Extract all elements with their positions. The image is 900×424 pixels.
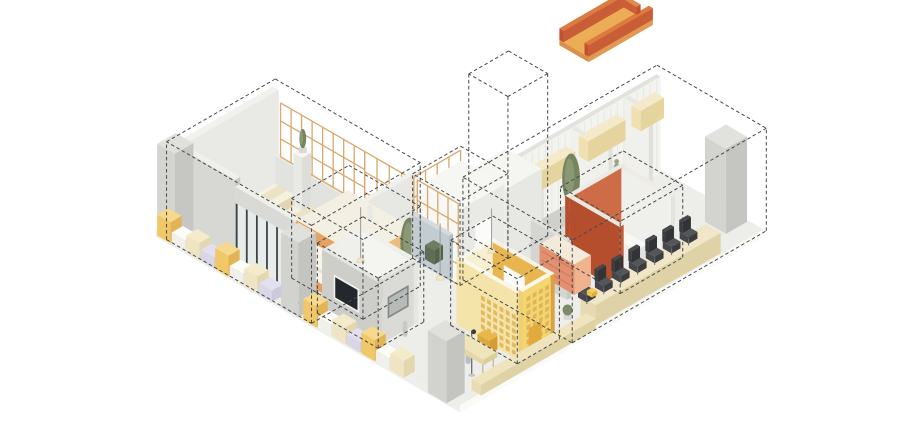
core-column	[705, 125, 747, 234]
column	[428, 320, 465, 403]
axon-svg	[0, 0, 900, 424]
person-on-pod-roof	[367, 205, 372, 222]
axonometric-office-illustration	[0, 0, 900, 424]
standing-person	[403, 321, 408, 337]
potted-plant	[563, 304, 573, 320]
plant-pedestal	[293, 148, 311, 211]
